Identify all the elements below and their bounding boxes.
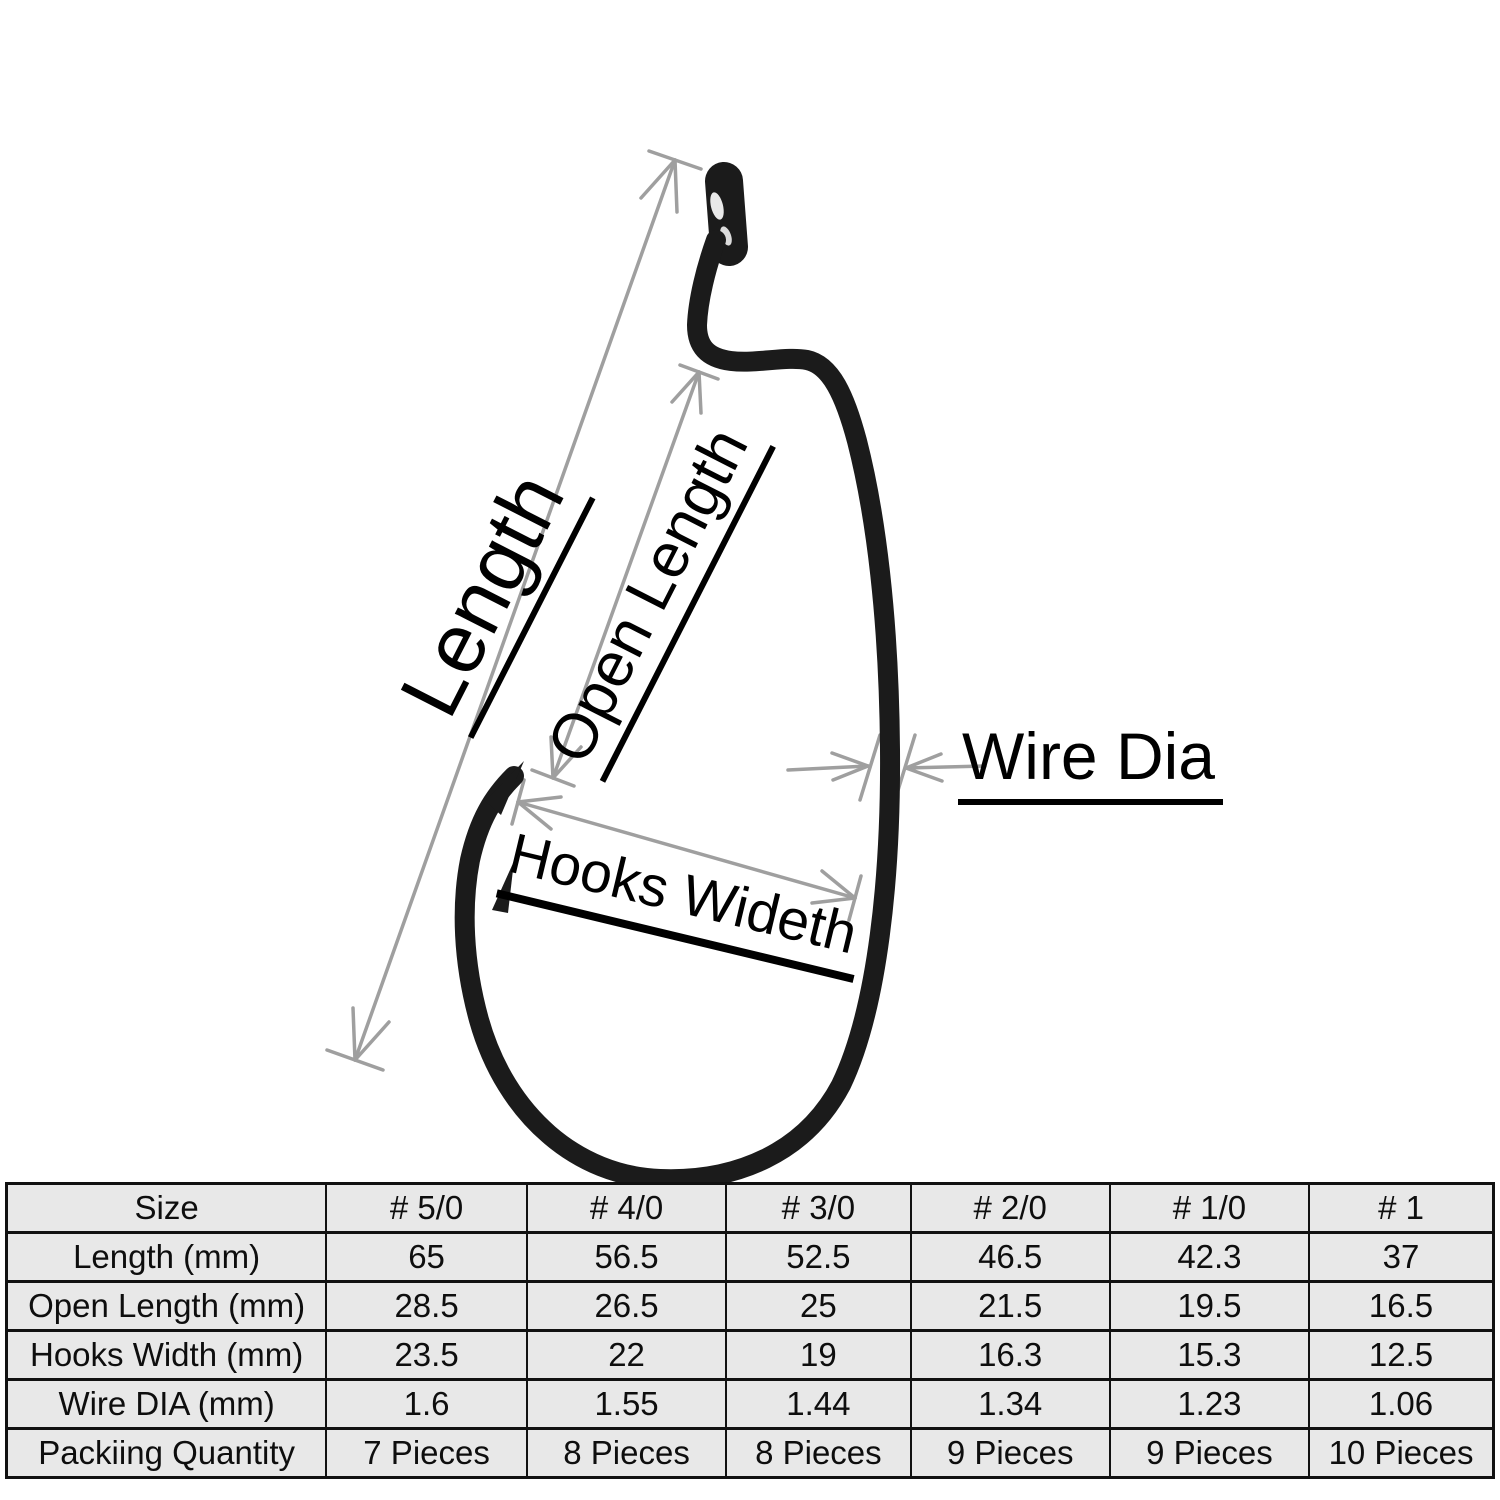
worm-hook-image	[465, 181, 890, 1179]
value-cell: 19.5	[1110, 1282, 1309, 1331]
value-cell: 37	[1309, 1233, 1493, 1282]
row-label: Hooks Width (mm)	[7, 1331, 327, 1380]
header-cell: # 5/0	[326, 1184, 527, 1233]
row-label: Open Length (mm)	[7, 1282, 327, 1331]
value-cell: 8 Pieces	[527, 1429, 726, 1478]
value-cell: 9 Pieces	[1110, 1429, 1309, 1478]
table-row: Wire DIA (mm)1.61.551.441.341.231.06	[7, 1380, 1494, 1429]
value-cell: 19	[726, 1331, 910, 1380]
value-cell: 12.5	[1309, 1331, 1493, 1380]
value-cell: 52.5	[726, 1233, 910, 1282]
wire-dia-label: Wire Dia	[958, 722, 1223, 805]
spec-table: Size# 5/0# 4/0# 3/0# 2/0# 1/0# 1 Length …	[5, 1182, 1495, 1479]
header-cell: # 1/0	[1110, 1184, 1309, 1233]
table-row: Packiing Quantity7 Pieces8 Pieces8 Piece…	[7, 1429, 1494, 1478]
value-cell: 1.06	[1309, 1380, 1493, 1429]
table-row: Open Length (mm)28.526.52521.519.516.5	[7, 1282, 1494, 1331]
wire-dia-label-text: Wire Dia	[958, 722, 1223, 805]
value-cell: 42.3	[1110, 1233, 1309, 1282]
value-cell: 21.5	[911, 1282, 1110, 1331]
spec-table-container: Size# 5/0# 4/0# 3/0# 2/0# 1/0# 1 Length …	[5, 1182, 1495, 1479]
header-cell: Size	[7, 1184, 327, 1233]
header-cell: # 4/0	[527, 1184, 726, 1233]
value-cell: 65	[326, 1233, 527, 1282]
value-cell: 26.5	[527, 1282, 726, 1331]
value-cell: 1.55	[527, 1380, 726, 1429]
value-cell: 16.3	[911, 1331, 1110, 1380]
value-cell: 10 Pieces	[1309, 1429, 1493, 1478]
value-cell: 15.3	[1110, 1331, 1309, 1380]
header-cell: # 1	[1309, 1184, 1493, 1233]
row-label: Packiing Quantity	[7, 1429, 327, 1478]
value-cell: 46.5	[911, 1233, 1110, 1282]
table-header-row: Size# 5/0# 4/0# 3/0# 2/0# 1/0# 1	[7, 1184, 1494, 1233]
value-cell: 9 Pieces	[911, 1429, 1110, 1478]
hook-spec-diagram: Length Open Length Wire Dia Hooks Wideth…	[0, 0, 1500, 1500]
row-label: Length (mm)	[7, 1233, 327, 1282]
value-cell: 25	[726, 1282, 910, 1331]
value-cell: 28.5	[326, 1282, 527, 1331]
value-cell: 1.6	[326, 1380, 527, 1429]
value-cell: 7 Pieces	[326, 1429, 527, 1478]
value-cell: 56.5	[527, 1233, 726, 1282]
table-row: Length (mm)6556.552.546.542.337	[7, 1233, 1494, 1282]
table-row: Hooks Width (mm)23.5221916.315.312.5	[7, 1331, 1494, 1380]
value-cell: 16.5	[1309, 1282, 1493, 1331]
value-cell: 1.34	[911, 1380, 1110, 1429]
value-cell: 22	[527, 1331, 726, 1380]
value-cell: 1.44	[726, 1380, 910, 1429]
row-label: Wire DIA (mm)	[7, 1380, 327, 1429]
header-cell: # 3/0	[726, 1184, 910, 1233]
header-cell: # 2/0	[911, 1184, 1110, 1233]
value-cell: 8 Pieces	[726, 1429, 910, 1478]
value-cell: 23.5	[326, 1331, 527, 1380]
value-cell: 1.23	[1110, 1380, 1309, 1429]
